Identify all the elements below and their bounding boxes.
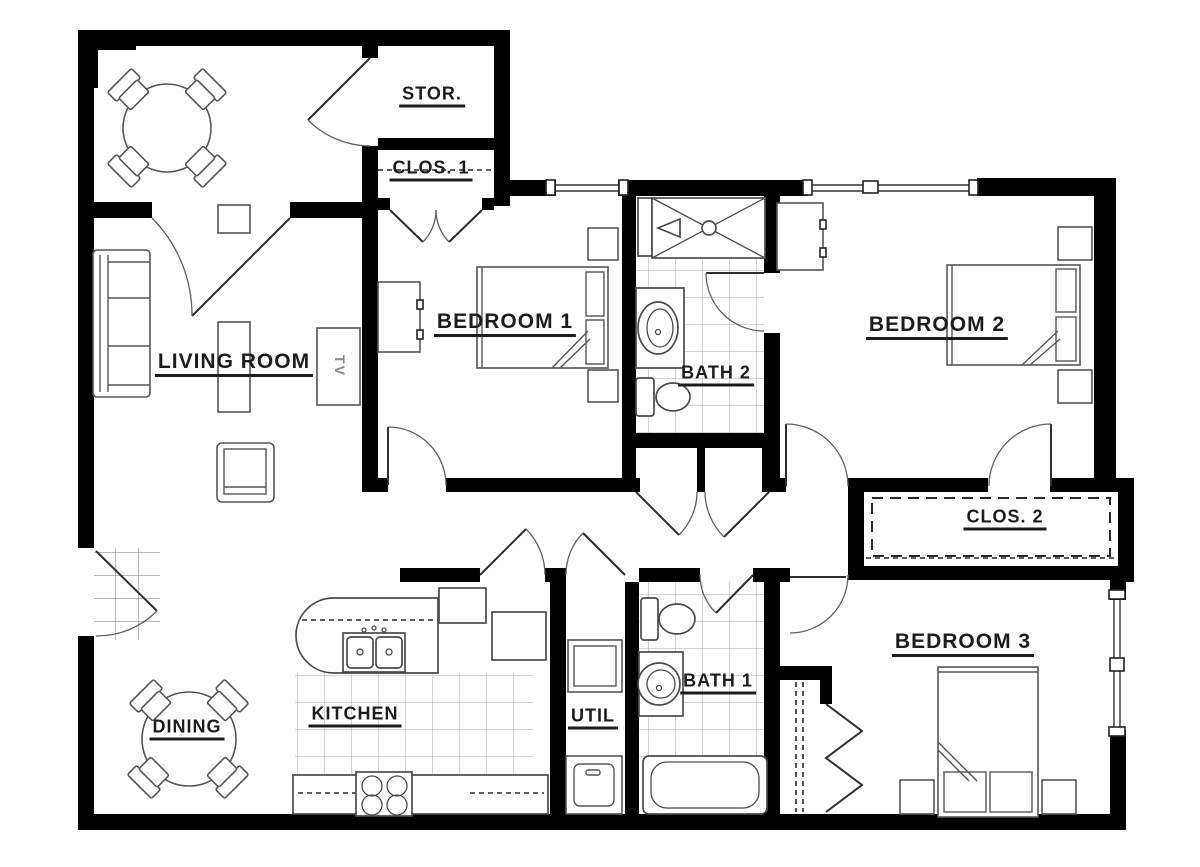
living-label: LIVING ROOM (155, 351, 313, 377)
bedroom3-label: BEDROOM 3 (892, 631, 1034, 657)
patio-furniture (107, 68, 226, 187)
closet2-label: CLOS. 2 (963, 508, 1046, 531)
floor-plan: STOR. CLOS. 1 BEDROOM 1 BATH 2 BEDROOM 2… (0, 0, 1200, 867)
dining-label: DINING (150, 718, 225, 741)
kitchen-pantry (439, 588, 486, 623)
bedroom2-dresser (777, 203, 826, 270)
kitchen-double-sink (343, 626, 405, 672)
bedroom3-nightstand (1042, 780, 1076, 814)
tv-label: TV (331, 352, 347, 380)
side-table (218, 205, 250, 233)
bedroom3-door (790, 575, 848, 633)
bath2-shower (652, 198, 765, 258)
washer (568, 640, 622, 692)
closet1-double-doors (390, 210, 482, 242)
bedroom2-door (786, 424, 848, 486)
hall-closet-door-right (705, 492, 769, 537)
stove (356, 772, 412, 816)
dryer (566, 756, 622, 814)
utility-door (566, 533, 625, 575)
bath1-label: BATH 1 (680, 672, 756, 695)
bath2-vanity-sink (636, 288, 684, 368)
sofa (93, 250, 150, 397)
bedroom1-dresser (378, 282, 423, 352)
bath1-vanity-sink (638, 652, 683, 716)
kitchen-counter-bottom (293, 772, 548, 816)
bedroom1-nightstand (588, 228, 618, 260)
kitchen-label: KITCHEN (309, 705, 402, 728)
bedroom3-nightstand (900, 780, 934, 814)
bedroom3-bed (938, 667, 1038, 817)
bath2-label: BATH 2 (678, 364, 754, 387)
armchair (217, 443, 274, 502)
bedroom2-nightstand (1058, 370, 1092, 403)
closet2-door (989, 424, 1051, 486)
bedroom3-furniture (900, 667, 1076, 817)
bedroom2-label: BEDROOM 2 (866, 314, 1008, 340)
storage-label: STOR. (399, 85, 465, 108)
bedroom2-window (803, 180, 978, 195)
bedroom1-door (388, 427, 446, 485)
refrigerator (492, 612, 546, 660)
utility-label: UTIL (568, 707, 618, 730)
bath2-linen-niche (638, 198, 652, 256)
bedroom1-nightstand (588, 370, 618, 402)
bedroom1-label: BEDROOM 1 (434, 311, 576, 337)
bedroom2-nightstand (1058, 227, 1092, 260)
kitchen-counter-top (296, 598, 438, 673)
bedroom1-window (546, 180, 628, 195)
bathtub (643, 756, 767, 814)
closet1-label: CLOS. 1 (389, 159, 472, 182)
bedroom2-furniture (777, 203, 1092, 403)
kitchen-door (480, 529, 545, 575)
storage-door (308, 58, 370, 146)
bedroom3-window (1109, 590, 1125, 736)
hall-closet-door-left (636, 492, 697, 535)
entry-tile-floor (94, 548, 160, 640)
